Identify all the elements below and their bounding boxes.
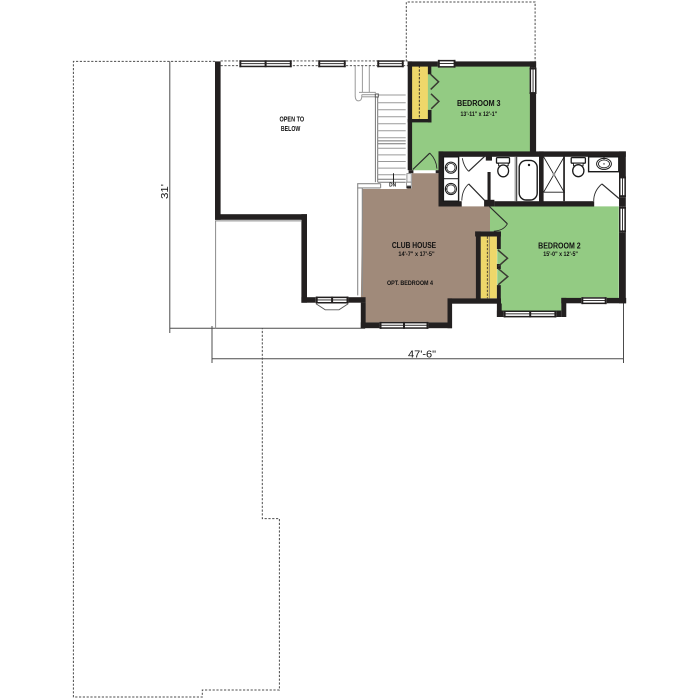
svg-text:14'-7" x 17'-5": 14'-7" x 17'-5" <box>398 251 434 258</box>
svg-text:OPT. BEDROOM 4: OPT. BEDROOM 4 <box>387 280 433 287</box>
svg-text:13'-11" x 12'-1": 13'-11" x 12'-1" <box>461 111 498 118</box>
svg-text:BEDROOM 3: BEDROOM 3 <box>457 98 501 108</box>
svg-text:15'-0" x 12'-5": 15'-0" x 12'-5" <box>543 251 578 258</box>
svg-text:BELOW: BELOW <box>281 124 301 133</box>
svg-text:OPEN TO: OPEN TO <box>280 115 305 124</box>
svg-text:CLUB HOUSE: CLUB HOUSE <box>392 240 436 250</box>
svg-text:DN: DN <box>389 182 396 188</box>
svg-text:31': 31' <box>159 184 171 199</box>
svg-text:47'-6": 47'-6" <box>408 349 436 361</box>
svg-text:BEDROOM 2: BEDROOM 2 <box>538 240 581 250</box>
